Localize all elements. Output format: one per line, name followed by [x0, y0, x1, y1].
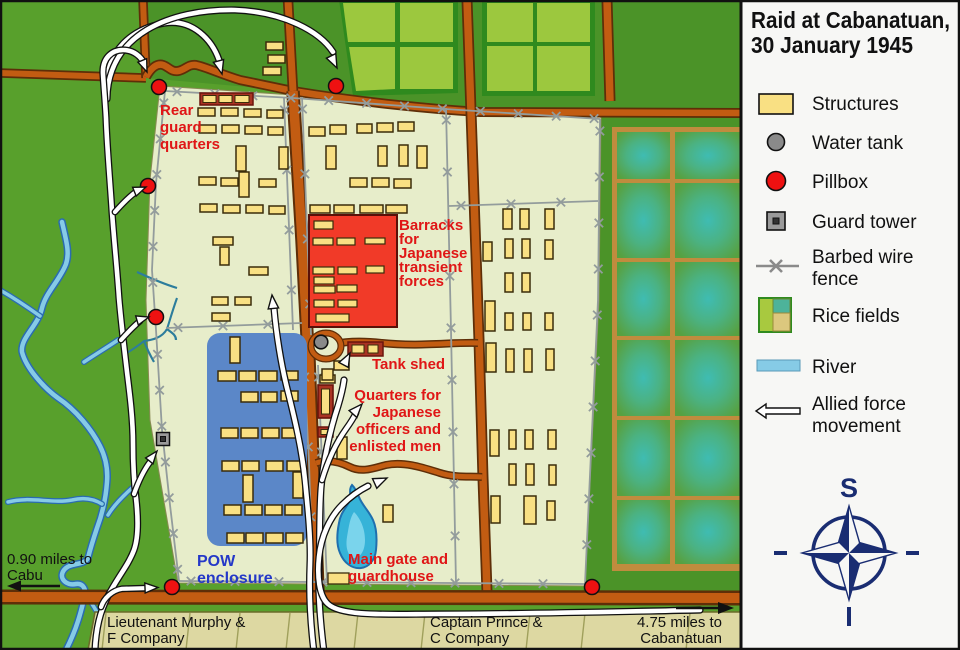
svg-text:Tank shed: Tank shed [372, 356, 445, 373]
svg-text:fence: fence [812, 269, 858, 290]
svg-text:0.90 miles to: 0.90 miles to [7, 551, 92, 568]
svg-text:Water tank: Water tank [812, 133, 904, 154]
svg-text:enlisted men: enlisted men [349, 438, 441, 455]
svg-text:officers and: officers and [356, 421, 441, 438]
svg-text:Pillbox: Pillbox [812, 172, 868, 193]
svg-text:enclosure: enclosure [197, 570, 273, 587]
svg-text:Quarters for: Quarters for [354, 387, 441, 404]
svg-text:Guard tower: Guard tower [812, 212, 917, 233]
svg-text:F Company: F Company [107, 630, 185, 647]
svg-text:30 January 1945: 30 January 1945 [751, 32, 913, 58]
svg-text:River: River [812, 357, 857, 378]
svg-text:Rear: Rear [160, 102, 194, 119]
svg-text:Lieutenant Murphy &: Lieutenant Murphy & [107, 614, 245, 631]
svg-text:POW: POW [197, 553, 236, 570]
svg-text:quarters: quarters [160, 136, 220, 153]
svg-text:C Company: C Company [430, 630, 510, 647]
svg-text:forces: forces [399, 273, 444, 290]
svg-text:Raid at Cabanatuan,: Raid at Cabanatuan, [751, 7, 950, 33]
svg-text:Allied force: Allied force [812, 394, 906, 415]
svg-text:Cabanatuan: Cabanatuan [640, 630, 722, 647]
svg-text:guardhouse: guardhouse [348, 568, 434, 585]
svg-text:Japanese: Japanese [373, 404, 441, 421]
svg-text:S: S [840, 473, 858, 503]
svg-text:movement: movement [812, 416, 901, 437]
svg-text:Main gate and: Main gate and [348, 551, 448, 568]
svg-text:Captain Prince &: Captain Prince & [430, 614, 543, 631]
svg-text:4.75 miles to: 4.75 miles to [637, 614, 722, 631]
svg-text:Rice fields: Rice fields [812, 306, 900, 327]
svg-text:Structures: Structures [812, 94, 899, 115]
svg-text:Cabu: Cabu [7, 567, 43, 584]
svg-text:guard: guard [160, 119, 202, 136]
svg-text:Barbed wire: Barbed wire [812, 247, 913, 268]
